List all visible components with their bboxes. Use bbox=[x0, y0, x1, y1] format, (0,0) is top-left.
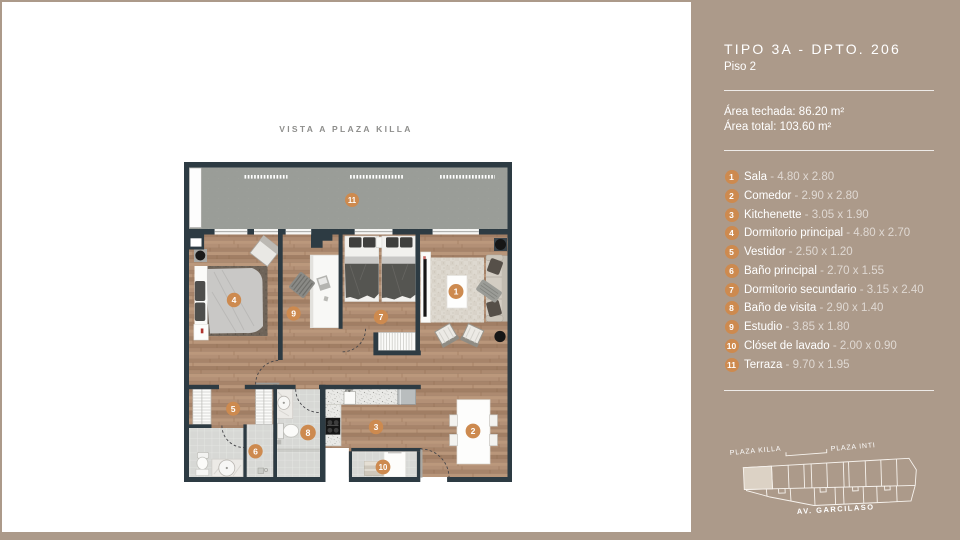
svg-text:4: 4 bbox=[232, 295, 237, 305]
svg-text:3: 3 bbox=[374, 422, 379, 432]
svg-text:9: 9 bbox=[291, 309, 296, 319]
svg-text:1: 1 bbox=[454, 287, 459, 297]
svg-text:8: 8 bbox=[306, 428, 311, 438]
svg-text:2: 2 bbox=[471, 426, 476, 436]
svg-text:PLAZA INTI: PLAZA INTI bbox=[831, 442, 876, 453]
svg-text:11: 11 bbox=[348, 196, 357, 205]
svg-text:10: 10 bbox=[379, 463, 388, 472]
svg-text:7: 7 bbox=[379, 312, 384, 322]
svg-text:5: 5 bbox=[231, 404, 236, 414]
svg-text:6: 6 bbox=[253, 446, 258, 456]
svg-text:PLAZA KILLA: PLAZA KILLA bbox=[730, 446, 782, 457]
